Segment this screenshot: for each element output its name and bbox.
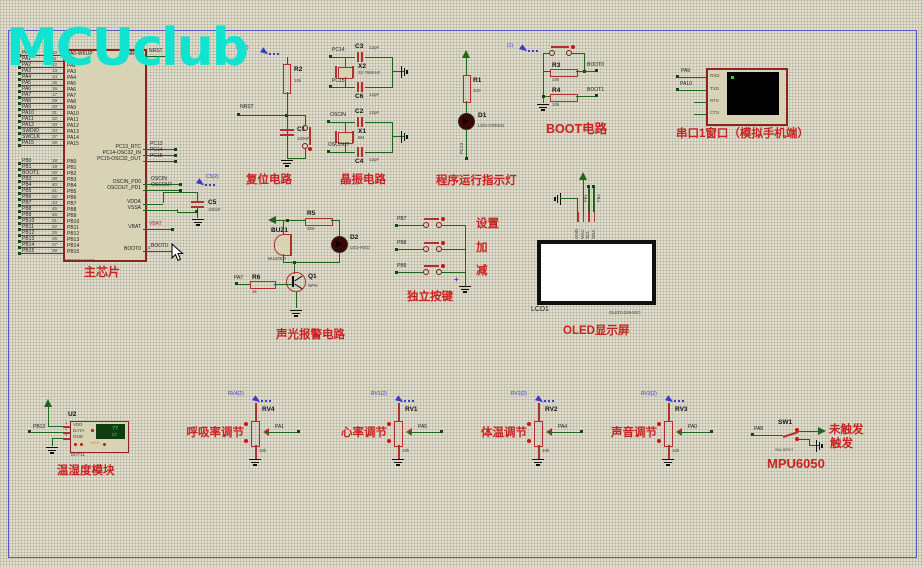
indicator-dot [91,429,94,432]
capacitor-plate[interactable] [191,201,204,203]
wire [753,435,783,436]
wire [576,71,596,72]
resistor-value: 300 [307,227,315,232]
boot-button-terminal[interactable] [549,50,555,56]
pot-lead [398,445,400,459]
oled-pin [588,212,590,222]
led-d2[interactable] [331,236,348,253]
wire [465,225,466,286]
plus-marker: + [454,276,459,284]
dht-ref: U2 [68,411,76,418]
transistor-q1[interactable] [286,272,306,292]
probe-tail-icon [404,400,415,402]
net-label: PA5 [418,425,427,431]
vcc-arrow-icon [44,399,52,407]
resistor-value: 10k [552,103,559,108]
terminal-dot [171,228,174,231]
wire [276,220,305,221]
net-label: PB15 [22,249,34,255]
button-actuator[interactable] [424,265,439,267]
wire [48,426,63,427]
oled-part-number: OLED12864I2C [609,311,641,316]
wire [365,122,392,123]
pot-lead [538,403,540,421]
wire [588,188,590,212]
net-label: PC15 [150,154,163,160]
pin-number: 2 [65,427,67,431]
pin-name: GND [73,435,83,440]
wire [345,122,346,132]
oled-pin [577,212,579,222]
dht-caption: 温湿度模块 [57,466,115,478]
pin-number: 38 [52,141,57,146]
pin-name: CTS [710,111,719,116]
terminal-dot [595,69,598,72]
resistor-r4[interactable] [550,94,578,102]
net-label: PC15 [332,79,345,85]
net-label: PB12 [33,425,45,431]
keys-caption: 独立按键 [407,292,453,304]
oled-pin-label: VCC [580,223,585,239]
wire [331,87,355,88]
junction-dot [542,95,545,98]
crystal-electrode [352,66,354,78]
wire [143,161,175,162]
net-label: PB0 [596,189,601,202]
terminal-cursor-dot [731,76,734,79]
oled-caption: OLED显示屏 [563,326,629,338]
wire [30,432,63,433]
vcc-arrow-icon [462,50,470,58]
capacitor-plate[interactable] [361,147,363,157]
led-ref: D1 [478,112,486,119]
wire [466,129,467,157]
net-label: PB7 [397,217,406,223]
wire [283,262,340,263]
wire [392,122,393,153]
pot-caption: 体温调节 [447,428,527,440]
led-ref: D2 [350,234,358,241]
pot-ref: RV1 [405,406,418,413]
wire [296,292,297,308]
net-label: PB8 [397,241,406,247]
pin-name: BOOT0 [124,247,141,253]
ground-symbol [816,440,824,452]
wire [799,431,818,432]
wire [397,225,423,226]
wire [287,57,288,64]
pot-value: 10k [672,449,679,454]
wire [345,77,346,87]
wire [52,438,63,439]
terminal-dot [297,430,300,433]
indicator-dot [103,443,106,446]
ground-symbol [532,459,544,467]
wire [143,210,177,211]
net-label: PA7 [234,276,243,282]
button-indicator-dot[interactable] [571,45,575,49]
pot-adjust-dot[interactable] [244,422,248,426]
probe-tail-icon [528,50,539,52]
switch-type-label: SW-SPDT [775,448,793,452]
runled-caption: 程序运行指示灯 [436,176,517,188]
terminal-post[interactable] [587,185,590,188]
dht-part-number: DHT11 [71,453,85,458]
capacitor-value: 12pF [369,46,379,51]
terminal-screen[interactable] [727,72,779,115]
wire [197,192,198,201]
resistor-r2[interactable] [283,64,291,94]
pin-name: OSCOUT_PD1 [107,186,141,192]
ground-symbol [281,160,293,168]
mcu-caption: 主芯片 [84,266,120,278]
wire [237,284,250,285]
crystal-electrode [335,66,337,78]
wire [143,229,172,230]
key-function-label: 减 [476,266,488,278]
ground-symbol [46,447,58,455]
junction-dot [286,219,289,222]
resistor-r6[interactable] [250,281,276,289]
net-label: PA15 [22,141,34,147]
net-label: BOOT0 [151,244,168,250]
wire [678,432,711,433]
transistor-base-bar [292,276,294,287]
wire [305,115,306,125]
voltage-probe-label: RV3(2) [641,392,657,398]
boot-caption: BOOT电路 [546,123,607,136]
wire [593,188,595,212]
vcc-arrow-icon [818,427,826,435]
wire [397,249,423,250]
switch-ref: SW1 [778,419,792,426]
terminal-dot [595,94,598,97]
wire [287,92,288,158]
pot-lead [668,445,670,459]
oled-pin [583,212,585,222]
serial-caption: 串口1窗口（模拟手机端） [676,129,809,141]
junction-dot [195,210,198,213]
pot-lead [538,445,540,459]
capacitor-plate[interactable] [357,117,359,127]
wire [441,225,465,226]
net-label: PA0 [688,425,697,431]
button-terminal[interactable] [423,269,429,275]
pot-adjust-dot[interactable] [387,439,391,443]
button-actuator[interactable] [424,218,439,220]
pin-number: 1 [65,421,67,425]
button-terminal[interactable] [423,222,429,228]
wire [265,432,298,433]
button-indicator-dot[interactable] [441,241,445,245]
crystal-caption: 晶振电路 [340,175,386,187]
voltage-probe-label: RV1(2) [371,392,387,398]
probe-tail-icon [205,184,216,186]
dht-unit-label: %RH [90,441,99,445]
resistor-value: 10k [294,79,301,84]
pot-caption: 声音调节 [577,428,657,440]
key-function-label: 加 [476,243,488,255]
pot-adjust-dot[interactable] [657,422,661,426]
voltage-probe-label: RV2(2) [511,392,527,398]
capacitor-value: 100nF [208,208,221,213]
net-label: PA10 [680,82,692,88]
pin-name: PC15-OSC32_OUT [97,157,141,163]
resistor-ref: R1 [473,77,481,84]
pot-ref: RV4 [262,406,275,413]
crystal-electrode [352,131,354,143]
resistor-value: 300 [473,89,481,94]
voltage-probe-label: (1) [507,44,513,50]
dht-lcd [96,424,125,439]
wire [560,198,578,199]
pin-name: VBAT [128,225,141,231]
net-label: OSCOUT [151,183,172,189]
wire [678,77,706,78]
wire [466,101,467,113]
capacitor-ref: C5 [208,199,216,206]
ground-symbol [662,459,674,467]
resistor-ref: R2 [294,66,302,73]
capacitor-plate[interactable] [361,117,363,127]
net-label: NRST [240,105,254,111]
oled-pin [594,212,596,222]
ground-symbol [401,131,409,143]
oled-display[interactable] [537,240,656,305]
wire [365,87,392,88]
pot-ref: RV2 [545,406,558,413]
net-label: OSCIN [330,113,346,119]
pot-value: 10k [259,449,266,454]
wire [345,57,346,67]
resistor-value: 10k [552,78,559,83]
wire [331,57,355,58]
pin-number: 28 [52,249,57,254]
pot-adjust-dot[interactable] [387,422,391,426]
capacitor-value: 12pF [369,111,379,116]
net-label: PB9 [397,264,406,270]
button-indicator-dot[interactable] [441,264,445,268]
button-indicator-dot[interactable] [441,217,445,221]
capacitor-plate[interactable] [361,52,363,62]
capacitor-ref: C3 [355,43,363,50]
capacitor-ref: C4 [355,158,363,165]
reset-button-terminal[interactable] [302,125,308,131]
reset-button-actuator[interactable] [309,127,311,145]
wire [397,272,423,273]
pot-lead [398,403,400,421]
mcu-part-number: STM32F103C8 [64,259,95,264]
wire [365,152,392,153]
wire [48,407,49,427]
terminal-dot [465,157,468,160]
wire [240,115,287,116]
buzzer-symbol[interactable] [274,234,292,256]
pot-lead [255,445,257,459]
led-value: LED-RED [350,246,370,251]
probe-tail-icon [261,400,272,402]
wire [52,438,53,446]
probe-tail-icon [269,53,280,55]
pin-name: RXD [710,74,720,79]
wire [339,221,340,236]
wire [163,192,164,203]
net-label: OSCOUT [328,143,349,149]
wire [441,272,465,273]
terminal-post[interactable] [592,185,595,188]
voltage-probe-label: C5(2) [206,175,219,181]
transistor-ref: Q1 [308,273,317,280]
transistor-value: NPN [308,284,318,289]
pot-caption: 心率调节 [307,428,387,440]
wire [287,115,305,116]
capacitor-ref: C2 [355,108,363,115]
pot-lead [668,403,670,421]
pot-lead [255,403,257,421]
ground-symbol [290,310,302,318]
oled-pin-label: GND [574,223,579,239]
net-label: VBAT [149,222,162,228]
crystal-value: 32.768KHz [358,71,380,76]
terminal-dot [174,160,177,163]
ground-symbol [249,459,261,467]
wire [329,122,355,123]
pot-value: 10k [542,449,549,454]
wire [577,198,578,212]
boot-button-actuator[interactable] [551,46,569,48]
pot-caption: 呼吸率调节 [164,428,244,440]
ground-symbol [553,193,561,205]
capacitor-value: 12pF [369,93,379,98]
state-high-label: 未触发 [829,425,864,437]
resistor-r3[interactable] [550,69,578,77]
net-label: PA9 [681,69,690,75]
button-indicator-dot[interactable] [308,147,312,151]
wire [274,284,292,285]
capacitor-value: 100nF [297,137,310,142]
pot-adjust-dot[interactable] [244,439,248,443]
wire [441,249,465,250]
ground-symbol [401,66,409,78]
wire [466,58,467,75]
pot-ref: RV3 [675,406,688,413]
capacitor-plate[interactable] [357,147,359,157]
wire [143,190,180,191]
schematic-canvas[interactable]: U1 PA0 10 PA0-WKUP PA1 11 PA1 [0,0,923,567]
capacitor-ref: C6 [355,93,363,100]
wire [365,57,392,58]
alarm-caption: 声光报警电路 [276,330,345,342]
wire [163,192,197,193]
terminal-dot [440,430,443,433]
reset-caption: 复位电路 [246,175,292,187]
wire [571,53,585,54]
probe-tail-icon [544,400,555,402]
pin-name: RTS [710,99,719,104]
net-label: PA8 [754,427,763,433]
push-button-row[interactable]: PB7 设置 [395,218,575,242]
mcu-pin-boot0[interactable]: BOOT0 44 BOOT0 [63,247,213,254]
vcc-arrow-icon [579,172,587,180]
probe-tail-icon [674,400,685,402]
pin-number: 4 [65,433,67,437]
resistor-ref: R5 [307,210,315,217]
pot-value: 10k [402,449,409,454]
wire [694,102,706,103]
capacitor-plate[interactable] [280,134,294,136]
mpu-caption: MPU6050 [767,457,825,470]
led-d1[interactable] [458,113,475,130]
mouse-cursor [171,243,184,262]
oled-pin-label: SDA [591,223,596,239]
resistor-value: 1k [252,290,257,295]
indicator-dot [80,443,83,446]
net-label: PC13 [459,136,464,154]
net-label: BOOT1 [587,88,604,94]
capacitor-value: 12pF [369,158,379,163]
pin-name: VSSA [128,206,141,212]
button-actuator[interactable] [424,242,439,244]
resistor-r5[interactable] [305,218,333,226]
wire [305,149,306,158]
wire [543,71,550,72]
capacitor-plate[interactable] [280,129,294,131]
wire [408,432,441,433]
indicator-dot [74,443,77,446]
wire [392,57,393,88]
mcu-pin-vbat[interactable]: VBAT 1 VBAT [63,225,213,232]
pot-adjust-dot[interactable] [657,439,661,443]
pot-adjust-dot[interactable] [527,439,531,443]
capacitor-plate[interactable] [361,82,363,92]
net-label: PB1 [583,189,588,202]
capacitor-plate[interactable] [357,82,359,92]
oled-ref: LCD1 [531,306,549,314]
ground-symbol [192,219,204,227]
ground-symbol [459,286,471,294]
net-label: PC14 [332,48,345,54]
button-terminal[interactable] [423,246,429,252]
wire [694,114,706,115]
resistor-r1[interactable] [463,75,471,103]
capacitor-plate[interactable] [357,52,359,62]
vcc-arrow-icon [268,216,276,224]
mcu-pin-pc15[interactable]: PC15-OSC32_OUT 4 PC15 [63,157,213,164]
pot-adjust-dot[interactable] [527,422,531,426]
terminal-dot [710,430,713,433]
dht-temperature-value: 27 [112,433,117,438]
state-low-label: 触发 [830,439,853,451]
key-function-label: 设置 [476,219,499,231]
pin-stub [63,438,70,440]
led-value: LED-GREEN [478,124,504,129]
wire [576,96,596,97]
pin-name: TXD [710,87,719,92]
wire [283,221,284,234]
oled-pin-label: SCL [585,223,590,239]
net-label: BOOT0 [587,63,604,69]
wire [329,152,355,153]
ground-symbol [392,459,404,467]
wire [678,90,706,91]
crystal-value: 8M [358,136,364,141]
watermark: MCUclub [6,22,247,74]
wire [287,158,306,159]
voltage-probe-label: RV4(2) [228,392,244,398]
ground-symbol [537,104,549,112]
net-label: PA4 [558,425,567,431]
net-label: PA1 [275,425,284,431]
